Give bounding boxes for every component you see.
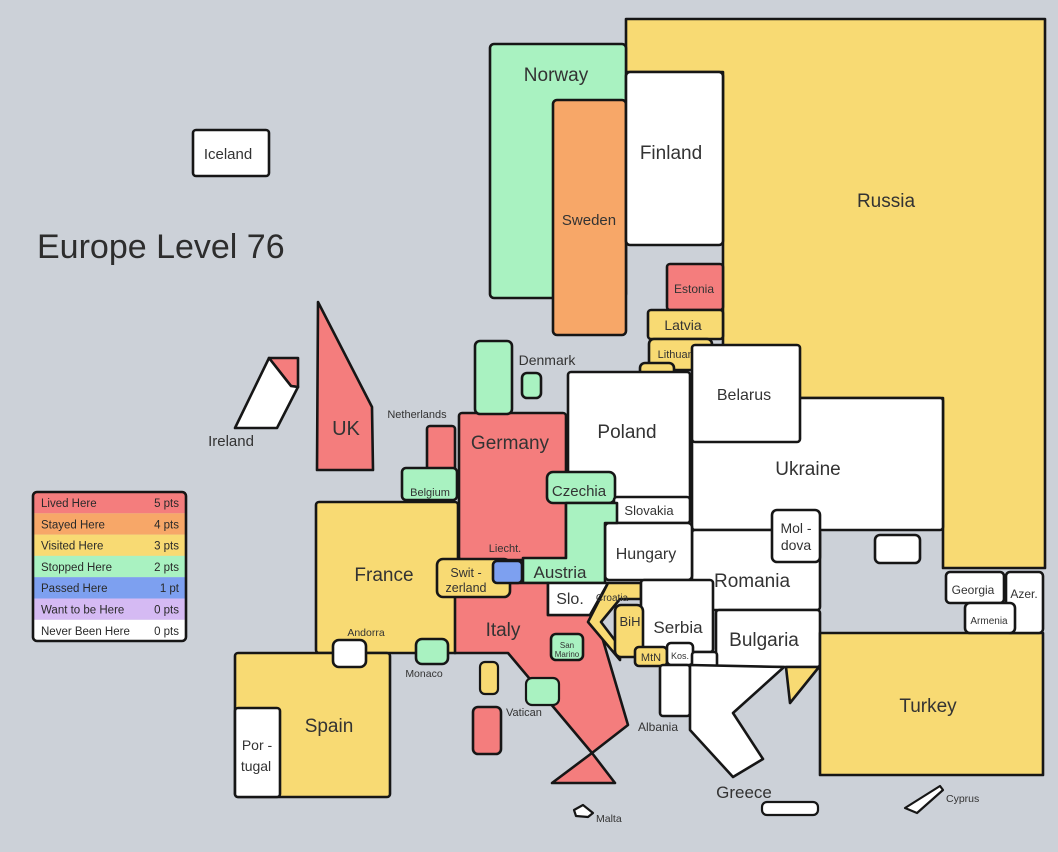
country-belarus-shape[interactable] xyxy=(692,345,800,442)
country-armenia-shape[interactable] xyxy=(965,603,1015,633)
legend: Lived Here 5 pts Stayed Here 4 pts Visit… xyxy=(33,492,186,641)
country-iceland-shape[interactable] xyxy=(193,130,269,176)
country-denmark-island-shape[interactable] xyxy=(522,373,541,398)
country-georgia-shape[interactable] xyxy=(946,572,1004,603)
country-turkey-shape[interactable] xyxy=(786,633,1043,775)
country-finland-shape[interactable] xyxy=(626,72,723,245)
country-kosovo-shape[interactable] xyxy=(667,643,693,665)
country-belgium-shape[interactable] xyxy=(402,468,457,500)
island-crete-shape[interactable] xyxy=(762,802,818,815)
country-slovakia-shape[interactable] xyxy=(614,497,690,523)
country-monaco-shape[interactable] xyxy=(416,639,448,664)
legend-swatch-never xyxy=(33,620,186,641)
country-portugal-shape[interactable] xyxy=(235,708,280,797)
country-bulgaria: Bulgaria xyxy=(716,610,820,667)
country-san-marino-shape[interactable] xyxy=(551,634,583,660)
country-latvia-shape[interactable] xyxy=(648,310,723,339)
country-czechia: Czechia xyxy=(547,472,615,503)
europe-level-map: Russia Norway Sweden Finland Estonia Lat… xyxy=(0,0,1058,852)
country-kosovo: Kos. xyxy=(667,643,693,665)
country-czechia-shape[interactable] xyxy=(547,472,615,503)
country-hungary-shape[interactable] xyxy=(605,523,692,580)
country-iceland: Iceland xyxy=(193,130,269,176)
country-sweden-shape[interactable] xyxy=(553,100,626,335)
country-hungary: Hungary xyxy=(605,523,692,580)
country-estonia: Estonia xyxy=(667,264,723,310)
country-belgium: Belgium xyxy=(402,468,457,500)
legend-swatch-stopped xyxy=(33,556,186,577)
country-albania-shape[interactable] xyxy=(660,665,690,716)
country-belarus: Belarus xyxy=(692,345,800,442)
country-moldova-shape[interactable] xyxy=(772,510,820,562)
country-armenia: Armenia xyxy=(965,603,1015,633)
legend-swatch-lived xyxy=(33,492,186,513)
country-portugal: Por - tugal xyxy=(235,708,280,797)
country-san-marino: San Marino xyxy=(551,634,583,660)
country-moldova: Mol - dova xyxy=(772,510,820,562)
country-vatican-shape[interactable] xyxy=(473,707,501,754)
country-andorra-shape[interactable] xyxy=(333,640,366,667)
country-serbia-shape[interactable] xyxy=(641,580,713,652)
legend-swatch-passed xyxy=(33,577,186,598)
island-sardinia-shape[interactable] xyxy=(526,678,559,705)
country-sweden: Sweden xyxy=(553,100,626,335)
page-title: Europe Level 76 xyxy=(37,228,285,266)
region-crimea-shape[interactable] xyxy=(875,535,920,563)
legend-swatch-want xyxy=(33,599,186,620)
country-finland: Finland xyxy=(626,72,723,245)
legend-swatch-visited xyxy=(33,535,186,556)
country-georgia: Georgia xyxy=(946,572,1004,603)
country-estonia-shape[interactable] xyxy=(667,264,723,310)
country-serbia: Serbia xyxy=(641,580,713,652)
country-bulgaria-shape[interactable] xyxy=(716,610,820,667)
country-liechtenstein-shape[interactable] xyxy=(493,561,522,583)
country-slovakia: Slovakia xyxy=(614,497,690,523)
country-montenegro: MtN xyxy=(635,647,667,666)
country-montenegro-shape[interactable] xyxy=(635,647,667,666)
legend-swatch-stayed xyxy=(33,513,186,534)
country-turkey: Turkey xyxy=(786,633,1043,775)
country-denmark-shape[interactable] xyxy=(475,341,512,414)
country-latvia: Latvia xyxy=(648,310,723,339)
island-corsica-shape[interactable] xyxy=(480,662,498,694)
